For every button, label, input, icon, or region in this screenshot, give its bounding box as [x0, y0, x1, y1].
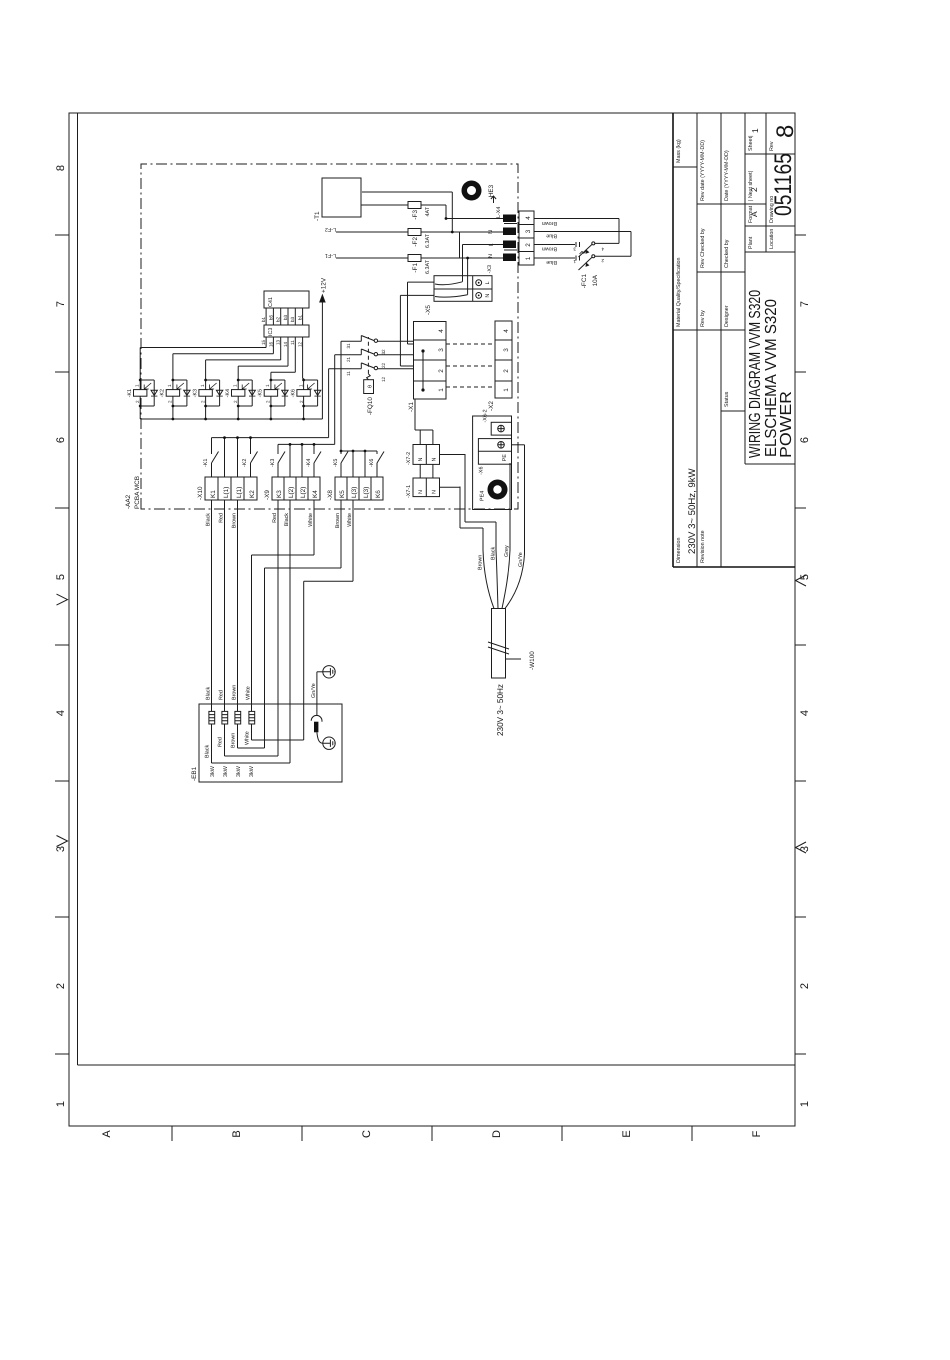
svg-text:-K5: -K5 [258, 389, 264, 397]
svg-text:b3: b3 [283, 314, 288, 320]
svg-text:D: D [491, 1130, 503, 1138]
svg-text:1: 1 [55, 1101, 67, 1107]
svg-text:8: 8 [772, 125, 799, 138]
svg-text:L(3): L(3) [351, 487, 358, 498]
svg-text:11: 11 [290, 340, 295, 345]
svg-text:Gn/Ye: Gn/Ye [311, 683, 317, 698]
svg-text:C41: C41 [268, 297, 274, 307]
svg-text:-F1: -F1 [412, 263, 419, 273]
svg-text:1: 1 [525, 256, 532, 260]
svg-text:3: 3 [573, 247, 576, 252]
svg-text:L(1): L(1) [236, 487, 243, 498]
svg-text:Black: Black [206, 513, 212, 526]
svg-text:22: 22 [381, 362, 386, 368]
svg-text:-T1: -T1 [314, 211, 321, 221]
svg-text:2: 2 [200, 400, 205, 403]
svg-text:Black: Black [284, 513, 290, 526]
svg-text:b1: b1 [261, 316, 266, 322]
svg-text:Sheet|: Sheet| [748, 136, 754, 152]
svg-text:White: White [246, 686, 252, 700]
svg-text:K6: K6 [375, 490, 382, 498]
svg-text:1: 1 [573, 259, 576, 264]
svg-text:Rev by: Rev by [700, 310, 706, 327]
svg-text:2: 2 [749, 187, 759, 192]
svg-text:PE4: PE4 [480, 491, 486, 501]
svg-text:Brown: Brown [232, 513, 238, 528]
svg-text:-X7-1: -X7-1 [406, 485, 412, 498]
svg-text:b3: b3 [290, 316, 295, 322]
svg-text:31: 31 [346, 343, 351, 349]
svg-text:10A: 10A [592, 274, 599, 286]
svg-text:Gn/Ye: Gn/Ye [518, 552, 524, 567]
svg-text:L-X4: L-X4 [496, 207, 502, 218]
svg-text:| Next sheet|: | Next sheet| [748, 171, 754, 201]
svg-text:-F3: -F3 [412, 210, 419, 220]
svg-text:K2: K2 [249, 490, 256, 498]
svg-text:4: 4 [525, 216, 532, 220]
svg-text:-K1: -K1 [127, 389, 133, 397]
svg-text:Rev Checked by: Rev Checked by [700, 228, 706, 268]
svg-text:Brown: Brown [542, 220, 557, 226]
svg-text:230V 3~ 50Hz: 230V 3~ 50Hz [495, 684, 505, 736]
svg-text:7: 7 [799, 301, 811, 307]
svg-text:-FQ10: -FQ10 [367, 397, 374, 416]
svg-text:2: 2 [525, 243, 532, 247]
svg-text:16: 16 [268, 341, 273, 347]
svg-text:14: 14 [283, 341, 288, 347]
svg-text:2: 2 [168, 400, 173, 403]
svg-text:Plant: Plant [748, 236, 754, 249]
svg-text:-X1: -X1 [408, 402, 415, 412]
svg-text:1: 1 [135, 384, 140, 387]
svg-text:POWER: POWER [778, 391, 795, 458]
svg-text:2: 2 [299, 400, 304, 403]
svg-text:-X6: -X6 [479, 467, 485, 475]
svg-text:-X3: -X3 [487, 265, 493, 273]
svg-text:1: 1 [265, 384, 270, 387]
svg-text:1: 1 [438, 388, 445, 392]
svg-text:12: 12 [381, 376, 386, 382]
svg-text:PE: PE [502, 454, 508, 462]
svg-text:IC3: IC3 [268, 328, 274, 336]
svg-text:2: 2 [135, 400, 140, 403]
svg-text:3kW: 3kW [223, 765, 229, 777]
svg-text:Brown: Brown [335, 513, 341, 528]
svg-text:1: 1 [750, 128, 760, 133]
svg-text:Red: Red [219, 690, 225, 700]
svg-text:6: 6 [55, 437, 67, 443]
svg-text:L(1): L(1) [223, 487, 230, 498]
svg-text:1: 1 [233, 384, 238, 387]
svg-text:7: 7 [55, 301, 67, 307]
svg-text:11: 11 [346, 371, 351, 376]
svg-text:-K4: -K4 [225, 389, 231, 397]
svg-text:-K6: -K6 [290, 389, 296, 397]
svg-text:3kW: 3kW [249, 765, 255, 777]
svg-text:Location: Location [769, 229, 775, 249]
svg-text:12: 12 [298, 341, 303, 347]
svg-text:Brown: Brown [478, 555, 484, 570]
svg-text:4: 4 [503, 329, 510, 333]
svg-text:E: E [621, 1130, 633, 1137]
svg-text:L: L [485, 282, 491, 285]
svg-text:-K6: -K6 [369, 459, 375, 467]
svg-text:Black: Black [206, 687, 212, 700]
svg-text:WIRING DIAGRAM VVM S320: WIRING DIAGRAM VVM S320 [747, 290, 764, 458]
svg-text:C: C [361, 1130, 373, 1138]
svg-text:Checked by: Checked by [724, 239, 730, 268]
svg-text:N: N [485, 294, 491, 298]
svg-text:3: 3 [799, 846, 811, 852]
svg-text:6: 6 [799, 437, 811, 443]
svg-text:K4: K4 [312, 490, 319, 498]
svg-text:2: 2 [601, 258, 604, 263]
svg-text:-FC1: -FC1 [581, 274, 588, 289]
svg-text:Rev date (YYYY-MM-DD): Rev date (YYYY-MM-DD) [700, 140, 706, 201]
svg-text:-X10: -X10 [197, 486, 204, 500]
svg-text:Dimension: Dimension [676, 538, 682, 563]
svg-text:White: White [308, 513, 314, 527]
svg-text:N: N [488, 230, 494, 234]
svg-text:-K3: -K3 [192, 389, 198, 397]
svg-text:B: B [231, 1130, 243, 1137]
svg-text:230V 3~ 50Hz, 9kW: 230V 3~ 50Hz, 9kW [687, 467, 698, 554]
svg-text:K1: K1 [210, 490, 217, 498]
svg-text:-K2: -K2 [160, 389, 166, 397]
svg-text:Red: Red [218, 737, 224, 747]
svg-text:-K2: -K2 [242, 459, 248, 467]
svg-text:2: 2 [233, 400, 238, 403]
svg-text:2: 2 [503, 369, 510, 373]
svg-text:-X9: -X9 [264, 490, 271, 500]
svg-text:White: White [347, 513, 353, 527]
svg-text:PCBA MCB: PCBA MCB [134, 476, 141, 509]
svg-text:1: 1 [167, 384, 172, 387]
svg-text:L(2): L(2) [300, 487, 307, 498]
svg-text:L(2): L(2) [288, 487, 295, 498]
svg-text:A: A [101, 1130, 113, 1138]
svg-text:A: A [749, 211, 759, 217]
svg-text:Red: Red [272, 513, 278, 523]
svg-text:-K3: -K3 [270, 459, 276, 467]
svg-text:L-F1: L-F1 [325, 252, 336, 258]
svg-text:-AA2: -AA2 [125, 494, 132, 509]
svg-text:3: 3 [503, 348, 510, 352]
svg-text:1: 1 [503, 388, 510, 392]
svg-text:L(3): L(3) [363, 487, 370, 498]
svg-text:8: 8 [55, 165, 67, 171]
svg-text:-F2: -F2 [412, 237, 419, 247]
svg-text:3: 3 [525, 229, 532, 233]
svg-text:Material Quality/Specification: Material Quality/Specification [676, 257, 682, 327]
svg-text:-EB1: -EB1 [191, 766, 198, 781]
svg-text:White: White [245, 731, 251, 745]
svg-text:-X6-2: -X6-2 [482, 409, 488, 422]
svg-text:Mass (kg): Mass (kg) [676, 139, 682, 163]
svg-text:Brown: Brown [231, 733, 237, 748]
svg-text:Grey: Grey [504, 545, 510, 557]
svg-text:Black: Black [491, 547, 497, 560]
svg-text:-X8: -X8 [327, 490, 334, 500]
svg-text:3kW: 3kW [236, 765, 242, 777]
svg-text:4AT: 4AT [425, 206, 431, 216]
svg-text:-X2: -X2 [488, 401, 495, 411]
svg-text:051165: 051165 [770, 153, 797, 216]
svg-text:32: 32 [381, 349, 386, 355]
svg-text:Black: Black [205, 745, 211, 758]
svg-text:Blue: Blue [546, 259, 557, 265]
svg-text:21: 21 [346, 356, 351, 362]
svg-text:F: F [751, 1130, 763, 1137]
svg-text:N: N [488, 254, 494, 258]
svg-text:N: N [432, 490, 438, 494]
svg-text:2: 2 [266, 400, 271, 403]
svg-text:5: 5 [55, 574, 67, 580]
svg-text:2: 2 [438, 369, 445, 373]
svg-text:K3: K3 [276, 490, 283, 498]
svg-text:Date (YYYY-MM-DD): Date (YYYY-MM-DD) [724, 150, 730, 201]
svg-text:4: 4 [55, 710, 67, 716]
svg-text:4: 4 [601, 247, 604, 252]
svg-text:Designer: Designer [724, 305, 730, 327]
svg-text:13: 13 [276, 339, 281, 345]
svg-text:+12V: +12V [321, 277, 328, 293]
svg-text:4: 4 [799, 710, 811, 716]
svg-text:-K4: -K4 [306, 459, 312, 467]
svg-text:-W100: -W100 [529, 651, 536, 670]
svg-text:3: 3 [438, 348, 445, 352]
svg-text:N: N [432, 458, 438, 462]
svg-text:6.3AT: 6.3AT [425, 233, 431, 248]
svg-text:b1: b1 [298, 314, 303, 320]
svg-text:4: 4 [438, 329, 445, 333]
svg-text:-X7-2: -X7-2 [406, 452, 412, 465]
svg-text:6.3AT: 6.3AT [425, 259, 431, 274]
svg-text:b5: b5 [268, 314, 273, 320]
svg-text:N: N [418, 490, 424, 494]
svg-text:L-F2: L-F2 [325, 226, 336, 232]
svg-text:Blue: Blue [546, 233, 557, 239]
svg-text:Rev: Rev [769, 141, 775, 151]
svg-text:-K1: -K1 [203, 459, 209, 467]
svg-text:5: 5 [799, 574, 811, 580]
svg-text:Revision note: Revision note [700, 530, 706, 563]
svg-text:2: 2 [799, 983, 811, 989]
svg-text:θ: θ [368, 385, 374, 388]
svg-text:K5: K5 [339, 490, 346, 498]
svg-text:-K5: -K5 [333, 459, 339, 467]
svg-text:2: 2 [55, 983, 67, 989]
svg-text:3kW: 3kW [210, 765, 216, 777]
svg-text:HE3: HE3 [488, 184, 495, 197]
svg-text:15: 15 [261, 339, 266, 345]
svg-text:1: 1 [799, 1101, 811, 1107]
svg-text:N: N [418, 458, 424, 462]
svg-text:1: 1 [200, 384, 205, 387]
svg-text:Brown: Brown [542, 246, 557, 252]
svg-text:-X5: -X5 [425, 305, 432, 315]
svg-text:Brown: Brown [232, 685, 238, 700]
svg-text:Status: Status [724, 391, 730, 407]
svg-text:1: 1 [298, 384, 303, 387]
svg-text:b2: b2 [276, 316, 281, 322]
svg-text:Red: Red [219, 513, 225, 523]
